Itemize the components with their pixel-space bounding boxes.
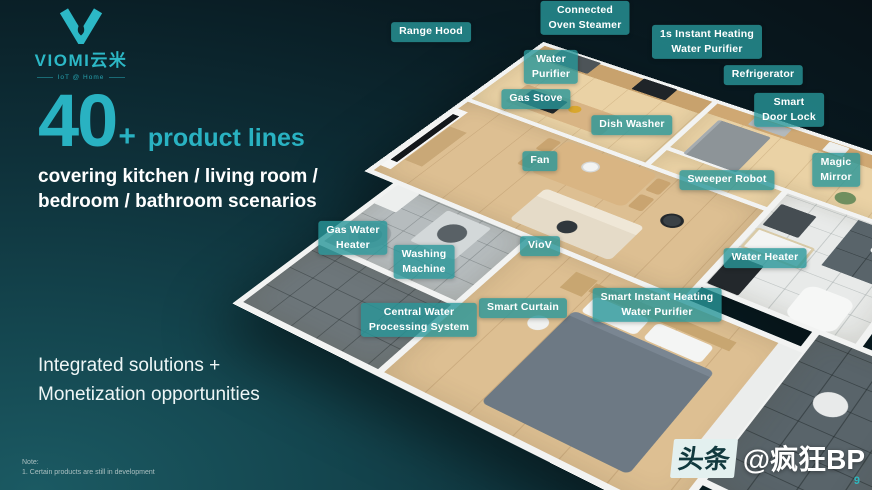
footnote-text: 1. Certain products are still in develop… bbox=[22, 468, 155, 478]
watermark: 头条 @疯狂BP bbox=[672, 438, 865, 478]
headline-number: 40 bbox=[38, 84, 116, 158]
headline-plus: + bbox=[118, 120, 136, 154]
watermark-prefix: 头条 bbox=[670, 439, 738, 478]
headline-label: product lines bbox=[148, 124, 305, 153]
footnote: Note: 1. Certain products are still in d… bbox=[22, 458, 155, 478]
viomi-logo: VIOMI云米 IoT @ Home bbox=[20, 8, 142, 81]
viomi-v-icon bbox=[58, 8, 104, 44]
subheadline-line1: covering kitchen / living room / bbox=[38, 164, 318, 189]
body-line2: Monetization opportunities bbox=[38, 381, 260, 410]
subheadline-line2: bedroom / bathroom scenarios bbox=[38, 189, 318, 214]
subheadline: covering kitchen / living room / bedroom… bbox=[38, 164, 318, 214]
headline: 40 + product lines bbox=[38, 84, 305, 158]
slide: Range HoodConnected Oven Steamer1s Insta… bbox=[0, 0, 872, 490]
body-text: Integrated solutions + Monetization oppo… bbox=[38, 352, 260, 409]
watermark-handle: @疯狂BP bbox=[743, 438, 865, 478]
footnote-label: Note: bbox=[22, 458, 155, 468]
body-line1: Integrated solutions + bbox=[38, 352, 260, 381]
logo-brand-text: VIOMI云米 bbox=[20, 46, 142, 71]
page-number: 9 bbox=[854, 475, 860, 487]
